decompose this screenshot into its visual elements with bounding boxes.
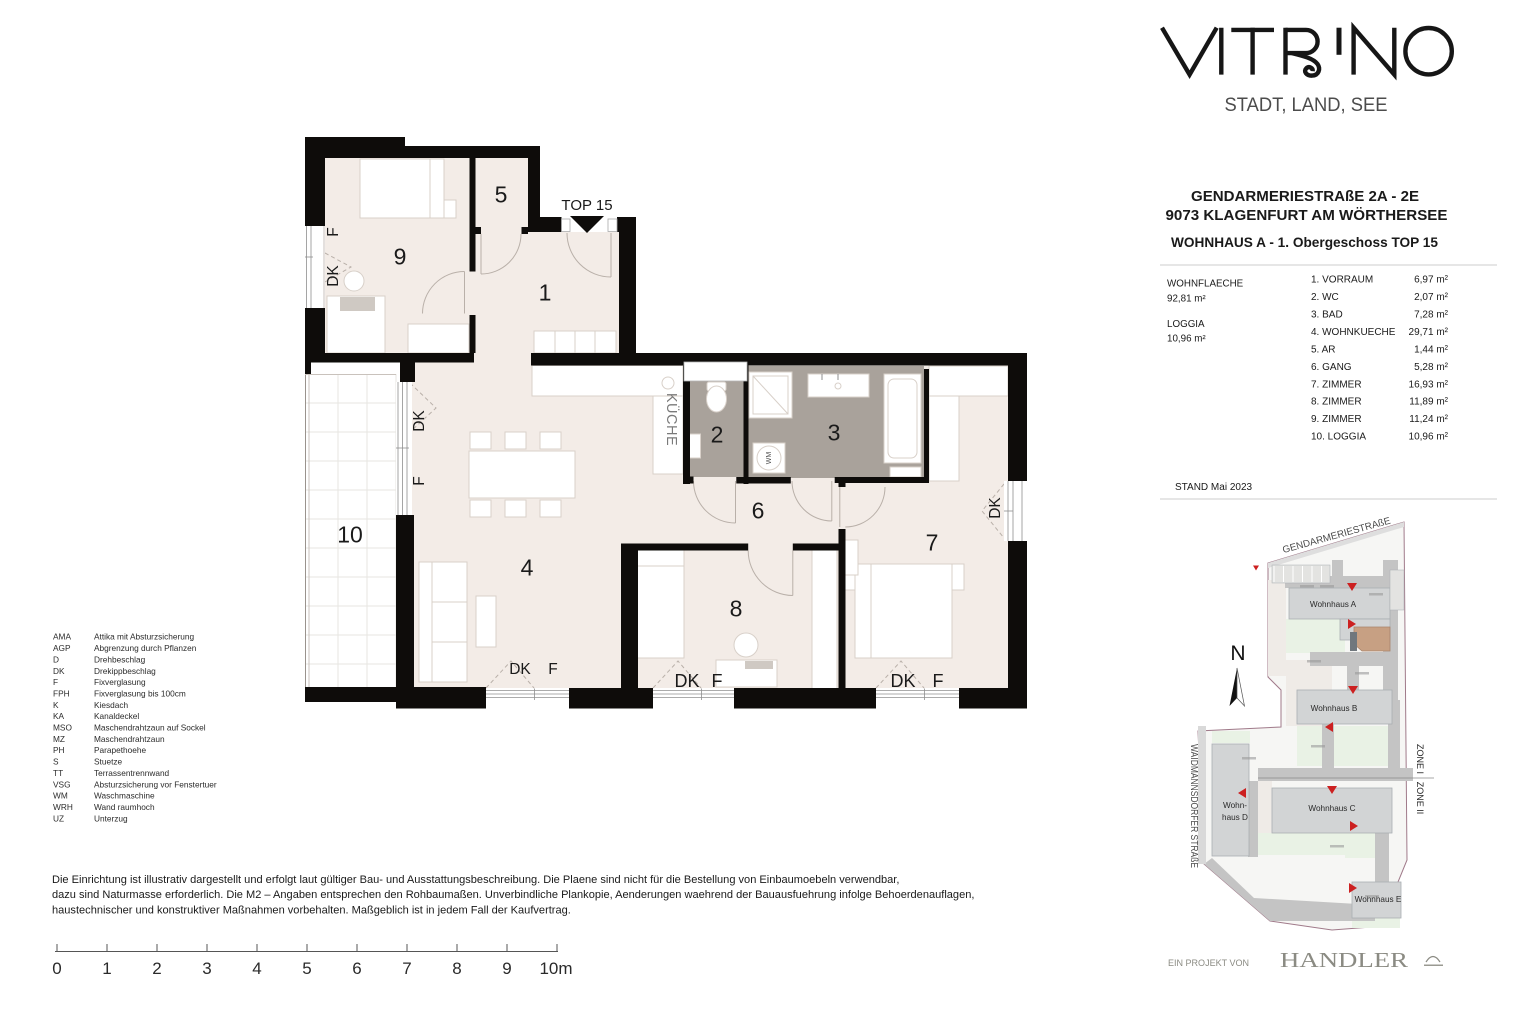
svg-text:K: K [53, 700, 59, 710]
svg-text:5,28 m²: 5,28 m² [1414, 362, 1449, 373]
svg-text:7,28 m²: 7,28 m² [1414, 310, 1449, 321]
svg-text:Kanaldeckel: Kanaldeckel [94, 711, 139, 721]
svg-text:F: F [933, 671, 944, 691]
svg-text:Wohnhaus A: Wohnhaus A [1310, 600, 1357, 609]
svg-text:Drehbeschlag: Drehbeschlag [94, 654, 146, 664]
svg-text:2: 2 [152, 959, 161, 978]
svg-text:Wohnhaus C: Wohnhaus C [1308, 804, 1355, 813]
svg-text:KA: KA [53, 711, 65, 721]
svg-text:2: 2 [711, 421, 724, 447]
svg-text:EIN PROJEKT VON: EIN PROJEKT VON [1168, 958, 1249, 969]
svg-text:10,96 m²: 10,96 m² [1409, 432, 1449, 443]
svg-text:5: 5 [495, 181, 508, 207]
svg-text:dazu sind Naturmasse erforderl: dazu sind Naturmasse erforderlich. Die M… [52, 889, 974, 901]
svg-text:VSG: VSG [53, 779, 71, 789]
svg-text:4: 4 [521, 554, 534, 580]
svg-text:Waschmaschine: Waschmaschine [94, 791, 155, 801]
svg-text:1: 1 [539, 279, 552, 305]
svg-text:PH: PH [53, 745, 65, 755]
svg-text:3: 3 [202, 959, 211, 978]
svg-text:F: F [411, 476, 428, 485]
svg-text:STAND Mai 2023: STAND Mai 2023 [1175, 482, 1253, 493]
svg-text:Fixverglasung: Fixverglasung [94, 677, 146, 687]
svg-text:WOHNFLAECHE: WOHNFLAECHE [1167, 279, 1244, 290]
svg-text:10: 10 [337, 522, 363, 548]
svg-text:Parapethoehe: Parapethoehe [94, 745, 147, 755]
svg-text:haustechnischer und konstrukti: haustechnischer und konstruktiver Maßnah… [52, 904, 571, 916]
svg-text:MZ: MZ [53, 734, 65, 744]
svg-text:7: 7 [402, 959, 411, 978]
svg-text:29,71 m²: 29,71 m² [1409, 327, 1449, 338]
svg-text:D: D [53, 654, 59, 664]
svg-text:AGP: AGP [53, 643, 71, 653]
svg-text:6,97 m²: 6,97 m² [1414, 275, 1449, 286]
svg-text:3. BAD: 3. BAD [1311, 310, 1343, 321]
svg-text:10,96 m²: 10,96 m² [1167, 334, 1206, 345]
svg-text:9: 9 [502, 959, 511, 978]
svg-text:DK: DK [674, 671, 699, 691]
svg-text:4: 4 [252, 959, 261, 978]
svg-text:6. GANG: 6. GANG [1311, 362, 1352, 373]
svg-text:10. LOGGIA: 10. LOGGIA [1311, 432, 1366, 443]
svg-text:1. VORRAUM: 1. VORRAUM [1311, 275, 1373, 286]
svg-text:1,44 m²: 1,44 m² [1414, 344, 1449, 355]
svg-text:DK: DK [53, 666, 65, 676]
svg-text:WM: WM [53, 791, 68, 801]
svg-text:Maschendrahtzaun: Maschendrahtzaun [94, 734, 165, 744]
svg-text:10m: 10m [539, 959, 572, 978]
svg-text:F: F [53, 677, 58, 687]
svg-text:GENDARMERIESTRAßE 2A - 2E: GENDARMERIESTRAßE 2A - 2E [1191, 189, 1419, 205]
svg-text:6: 6 [352, 959, 361, 978]
svg-text:DK: DK [890, 671, 915, 691]
svg-text:TOP 15: TOP 15 [561, 197, 612, 214]
svg-text:11,24 m²: 11,24 m² [1409, 414, 1448, 425]
svg-text:ZONE I: ZONE I [1415, 744, 1425, 774]
svg-text:5: 5 [302, 959, 311, 978]
svg-text:Wohnhaus B: Wohnhaus B [1311, 704, 1358, 713]
svg-text:FPH: FPH [53, 689, 70, 699]
svg-text:TT: TT [53, 768, 63, 778]
svg-text:0: 0 [52, 959, 61, 978]
svg-text:16,93 m²: 16,93 m² [1409, 379, 1449, 390]
svg-text:7: 7 [926, 529, 939, 555]
svg-text:STADT, LAND, SEE: STADT, LAND, SEE [1225, 95, 1388, 116]
svg-text:DK: DK [509, 661, 531, 678]
svg-text:6: 6 [752, 497, 765, 523]
svg-text:N: N [1230, 642, 1245, 665]
svg-text:UZ: UZ [53, 813, 64, 823]
svg-text:WAIDMANNSDORFER STRAßE: WAIDMANNSDORFER STRAßE [1188, 744, 1199, 868]
svg-text:DK: DK [987, 497, 1004, 519]
svg-text:AMA: AMA [53, 632, 71, 642]
svg-text:2. WC: 2. WC [1311, 292, 1339, 303]
svg-text:Die Einrichtung ist illustrati: Die Einrichtung ist illustrativ dargeste… [52, 874, 899, 886]
svg-text:Kiesdach: Kiesdach [94, 700, 129, 710]
svg-text:haus D: haus D [1222, 813, 1248, 822]
svg-text:5. AR: 5. AR [1311, 344, 1335, 355]
svg-text:DK: DK [325, 265, 342, 287]
svg-text:F: F [325, 227, 342, 236]
svg-text:F: F [548, 661, 557, 678]
svg-text:WM: WM [766, 452, 773, 465]
svg-text:Wand raumhoch: Wand raumhoch [94, 802, 155, 812]
svg-text:7. ZIMMER: 7. ZIMMER [1311, 379, 1362, 390]
svg-text:2,07 m²: 2,07 m² [1414, 292, 1449, 303]
svg-text:WRH: WRH [53, 802, 73, 812]
svg-text:8: 8 [730, 595, 743, 621]
svg-text:1: 1 [102, 959, 111, 978]
svg-text:WOHNHAUS A - 1. Obergeschoss T: WOHNHAUS A - 1. Obergeschoss TOP 15 [1171, 235, 1438, 250]
svg-text:9: 9 [394, 243, 407, 269]
svg-text:11,89 m²: 11,89 m² [1409, 397, 1448, 408]
svg-text:LOGGIA: LOGGIA [1167, 319, 1205, 330]
svg-text:3: 3 [828, 419, 841, 445]
svg-text:HANDLER: HANDLER [1280, 948, 1408, 972]
svg-text:Stuetze: Stuetze [94, 757, 123, 767]
svg-text:Unterzug: Unterzug [94, 813, 128, 823]
svg-text:Absturzsicherung vor Fenstertu: Absturzsicherung vor Fenstertuer [94, 779, 217, 789]
svg-text:92,81 m²: 92,81 m² [1167, 293, 1206, 304]
svg-text:4. WOHNKUECHE: 4. WOHNKUECHE [1311, 327, 1396, 338]
svg-text:Abgrenzung durch Pflanzen: Abgrenzung durch Pflanzen [94, 643, 197, 653]
svg-text:Wohn-: Wohn- [1223, 801, 1247, 810]
svg-text:9. ZIMMER: 9. ZIMMER [1311, 414, 1362, 425]
svg-text:ZONE II: ZONE II [1415, 782, 1425, 815]
svg-text:Attika mit Absturzsicherung: Attika mit Absturzsicherung [94, 632, 194, 642]
svg-text:Terrassentrennwand: Terrassentrennwand [94, 768, 170, 778]
svg-text:F: F [712, 671, 723, 691]
svg-text:Maschendrahtzaun auf Sockel: Maschendrahtzaun auf Sockel [94, 723, 206, 733]
svg-text:Drekippbeschlag: Drekippbeschlag [94, 666, 156, 676]
svg-text:MSO: MSO [53, 723, 72, 733]
svg-text:8: 8 [452, 959, 461, 978]
svg-text:9073 KLAGENFURT AM WÖRTHERSEE: 9073 KLAGENFURT AM WÖRTHERSEE [1166, 207, 1448, 224]
svg-text:DK: DK [411, 410, 428, 432]
svg-text:KÜCHE: KÜCHE [663, 393, 681, 446]
svg-text:8. ZIMMER: 8. ZIMMER [1311, 397, 1362, 408]
svg-text:S: S [53, 757, 59, 767]
svg-text:Fixverglasung bis 100cm: Fixverglasung bis 100cm [94, 689, 186, 699]
